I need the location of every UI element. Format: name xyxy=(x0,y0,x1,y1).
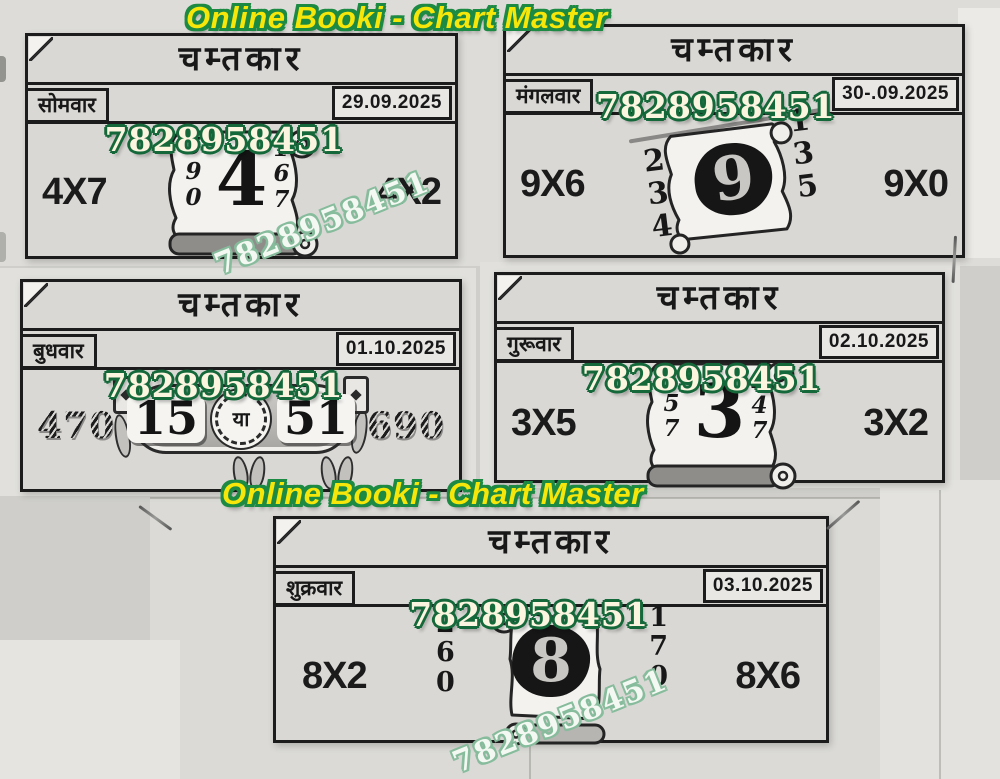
scroll-digit: 1 xyxy=(649,603,668,633)
phone-number: 7828958451 xyxy=(105,120,345,159)
paper-sheet xyxy=(0,640,180,779)
or-label: या xyxy=(233,405,250,432)
phone-number: 7828958451 xyxy=(409,595,649,634)
photo-collage: Online Booki - Chart Master Online Booki… xyxy=(0,0,1000,779)
date-label: 01.10.2025 xyxy=(336,332,456,366)
scroll-digit: 7 xyxy=(649,632,668,662)
page-curl-icon xyxy=(24,283,48,307)
scroll-digit: 0 xyxy=(186,185,202,210)
page-curl-icon xyxy=(29,37,53,61)
card-title: चम्तकार xyxy=(276,519,826,568)
right-code: 8X6 xyxy=(735,655,800,698)
day-label: गुरूवार xyxy=(497,327,574,362)
scroll-digit: 7 xyxy=(751,418,767,443)
paper-edge xyxy=(0,232,6,262)
date-label: 03.10.2025 xyxy=(703,569,823,603)
chart-card-thursday: चम्तकार गुरूवार 02.10.2025 7828958451 3X… xyxy=(494,272,945,483)
left-code: 9X6 xyxy=(520,163,585,206)
scroll-digit: 2 xyxy=(642,143,667,178)
scroll-digit: 6 xyxy=(273,161,289,186)
scroll-digit: 3 xyxy=(791,136,816,171)
left-code: 4X7 xyxy=(42,171,107,214)
day-label: बुधवार xyxy=(23,334,97,369)
scroll-digit: 0 xyxy=(436,668,455,698)
date-label: 29.09.2025 xyxy=(332,86,452,120)
card-title: चम्तकार xyxy=(28,36,455,85)
date-label: 30-.09.2025 xyxy=(832,77,959,111)
chart-card-tuesday: चम्तकार मंगलवार 30-.09.2025 7828958451 9… xyxy=(503,24,965,258)
paper-seam xyxy=(939,490,941,779)
right-code: 9X0 xyxy=(883,163,948,206)
date-label: 02.10.2025 xyxy=(819,325,939,359)
page-curl-icon xyxy=(498,276,522,300)
phone-number: 7828958451 xyxy=(104,366,344,405)
paper-edge xyxy=(0,56,6,82)
page-curl-icon xyxy=(277,520,301,544)
page-title-middle: Online Booki - Chart Master xyxy=(222,476,644,512)
left-code: 470 xyxy=(37,405,115,447)
right-code: 690 xyxy=(367,405,445,447)
chart-card-monday: चम्तकार सोमवार 29.09.2025 7828958451 4X7… xyxy=(25,33,458,259)
card-body: 9X6 2 3 4 9 1 3 5 xyxy=(520,119,948,249)
scroll-digit: 7 xyxy=(273,187,289,212)
left-code: 3X5 xyxy=(511,402,576,445)
day-label: शुक्रवार xyxy=(276,571,355,606)
card-header-row: बुधवार 01.10.2025 xyxy=(23,331,459,370)
chart-card-wednesday: चम्तकार बुधवार 01.10.2025 7828958451 470 xyxy=(20,279,462,492)
scroll-digit: 3 xyxy=(646,176,671,211)
scroll-digit: 9 xyxy=(186,159,202,184)
scroll-digit: 6 xyxy=(436,638,455,668)
day-label: सोमवार xyxy=(28,88,109,123)
card-title: चम्तकार xyxy=(497,275,942,324)
page-title-top: Online Booki - Chart Master xyxy=(186,0,608,36)
day-label: मंगलवार xyxy=(506,79,593,114)
card-title: चम्तकार xyxy=(23,282,459,331)
phone-number: 7828958451 xyxy=(596,87,836,126)
phone-number: 7828958451 xyxy=(582,359,822,398)
scroll-digit: 5 xyxy=(795,169,820,204)
scroll-digit: 4 xyxy=(650,209,675,244)
right-code: 3X2 xyxy=(863,402,928,445)
scroll-digit: 7 xyxy=(664,416,680,441)
main-number: 8 xyxy=(512,625,590,697)
left-code: 8X2 xyxy=(302,655,367,698)
